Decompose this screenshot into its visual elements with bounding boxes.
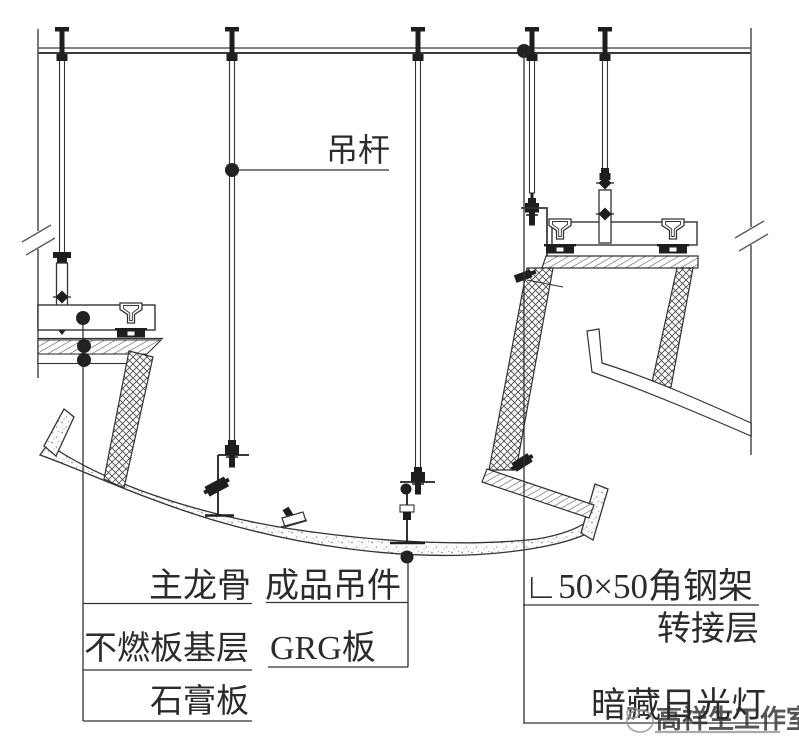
label-angle-steel-frame: ∟50×50角钢架 (524, 567, 753, 606)
label-gypsum-board: 石膏板 (150, 683, 249, 720)
label-grg-panel: GRG板 (270, 629, 376, 667)
fireproof-board-layer (38, 340, 161, 354)
label-main-runner: 主龙骨 (149, 567, 251, 605)
angle-frame-top-chord (542, 256, 698, 268)
label-finished-hanger: 成品吊件 (265, 567, 401, 605)
label-fireproof-board-base: 不燃板基层 (84, 630, 249, 667)
label-hanger-rod: 吊杆 (326, 132, 390, 168)
ceiling-detail-drawing: 吊杆 主龙骨 成品吊件 不燃板基层 GRG板 石膏板 ∟50×50角钢架 转接层… (0, 0, 799, 752)
label-adapter-layer: 转接层 (657, 610, 759, 648)
leader-node-dot (401, 551, 414, 564)
detail-drawing-svg: 吊杆 主龙骨 成品吊件 不燃板基层 GRG板 石膏板 ∟50×50角钢架 转接层… (0, 0, 799, 752)
watermark-text: 高祥生工作室 (656, 704, 799, 734)
